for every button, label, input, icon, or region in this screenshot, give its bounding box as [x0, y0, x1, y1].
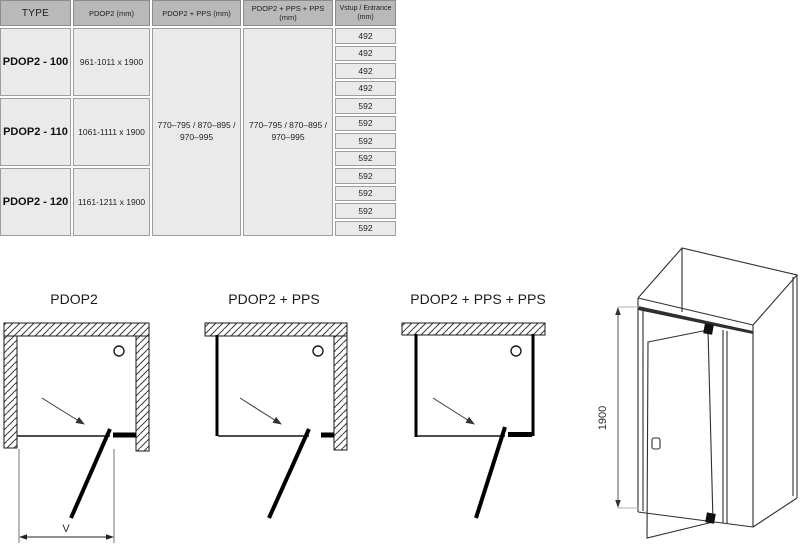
door-leaf	[269, 429, 309, 518]
v-dimension-label: V	[62, 523, 70, 535]
drain-circle-icon	[114, 346, 124, 356]
dim-arrow-right	[106, 534, 114, 540]
wall-top	[402, 323, 545, 335]
pdop2-pps-pps-diagram: PDOP2 + PPS + PPS	[402, 291, 546, 518]
door-handle-icon	[652, 438, 660, 449]
wall-right	[136, 336, 149, 451]
swing-arrow	[240, 398, 281, 424]
dim-arrow-top	[615, 307, 621, 315]
door-leaf	[476, 427, 505, 518]
spec-sheet: TYPE PDOP2 (mm) PDOP2 + PPS (mm) PDOP2 +…	[0, 0, 800, 544]
hinge-top-icon	[703, 323, 714, 334]
pdop2-pps-diagram: PDOP2 + PPS	[205, 291, 347, 518]
height-dimension-label: 1900	[597, 406, 609, 430]
door-leaf	[71, 429, 110, 518]
hinge-bottom-icon	[705, 512, 716, 523]
drain-circle-icon	[511, 346, 521, 356]
wall-top	[205, 323, 347, 336]
pdop2-pps-title: PDOP2 + PPS	[228, 291, 319, 307]
swing-arrow	[42, 398, 84, 424]
technical-drawings: PDOP2 V PDOP2 + PPS	[0, 0, 800, 544]
wall-right	[334, 336, 347, 450]
wall-left	[4, 336, 17, 448]
perspective-view: 1900	[597, 248, 797, 538]
bottom-right-edge	[753, 498, 797, 527]
drain-circle-icon	[313, 346, 323, 356]
pdop2-title: PDOP2	[50, 291, 98, 307]
pdop2-pps-pps-title: PDOP2 + PPS + PPS	[410, 291, 545, 307]
wall-top	[4, 323, 149, 336]
dim-arrow-bottom	[615, 500, 621, 508]
dim-arrow-left	[19, 534, 27, 540]
door-glass	[647, 330, 713, 538]
swing-arrow	[433, 398, 474, 424]
pdop2-diagram: PDOP2 V	[4, 291, 149, 543]
top-frame-profile	[638, 306, 753, 334]
bottom-front-edge	[638, 512, 753, 527]
